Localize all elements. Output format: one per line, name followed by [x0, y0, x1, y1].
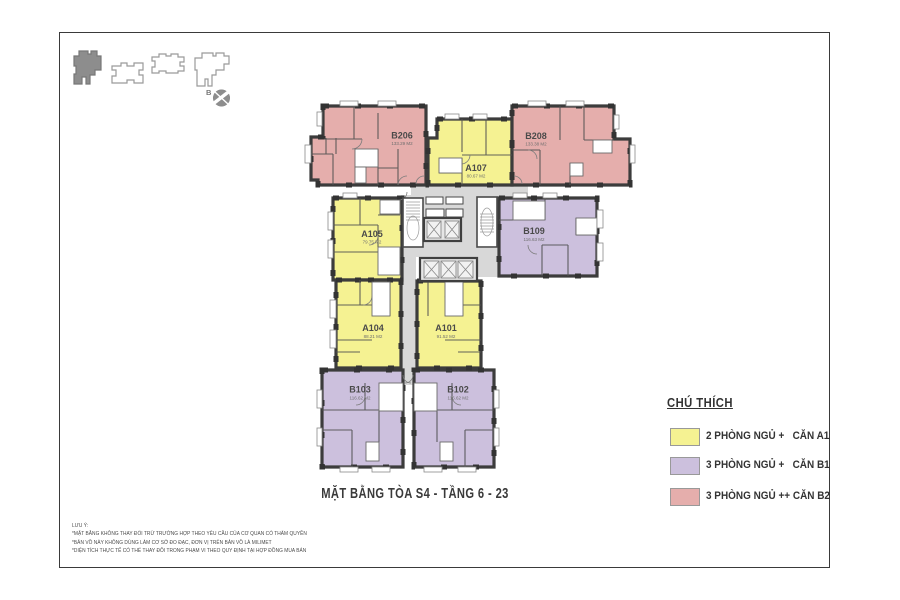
svg-text:A101: A101: [435, 323, 457, 333]
svg-text:B: B: [206, 88, 212, 97]
svg-text:116.63 M2: 116.63 M2: [524, 237, 545, 242]
svg-text:91.52 M2: 91.52 M2: [437, 334, 456, 339]
svg-text:133.29 M2: 133.29 M2: [391, 141, 413, 146]
svg-text:80.67 M2: 80.67 M2: [467, 174, 486, 179]
svg-text:116.62 M2: 116.62 M2: [350, 396, 371, 401]
svg-text:A105: A105: [361, 229, 383, 239]
svg-text:B102: B102: [447, 385, 469, 395]
svg-text:133.38 M2: 133.38 M2: [525, 142, 547, 147]
svg-text:A107: A107: [465, 163, 487, 173]
svg-text:88.21 M2: 88.21 M2: [364, 334, 383, 339]
svg-text:A104: A104: [362, 323, 384, 333]
svg-text:116.62 M2: 116.62 M2: [448, 396, 469, 401]
svg-text:B206: B206: [391, 131, 413, 141]
svg-text:B109: B109: [523, 226, 545, 236]
svg-text:79.75 M2: 79.75 M2: [363, 240, 382, 245]
svg-text:B208: B208: [525, 131, 547, 141]
svg-text:B103: B103: [349, 385, 371, 395]
